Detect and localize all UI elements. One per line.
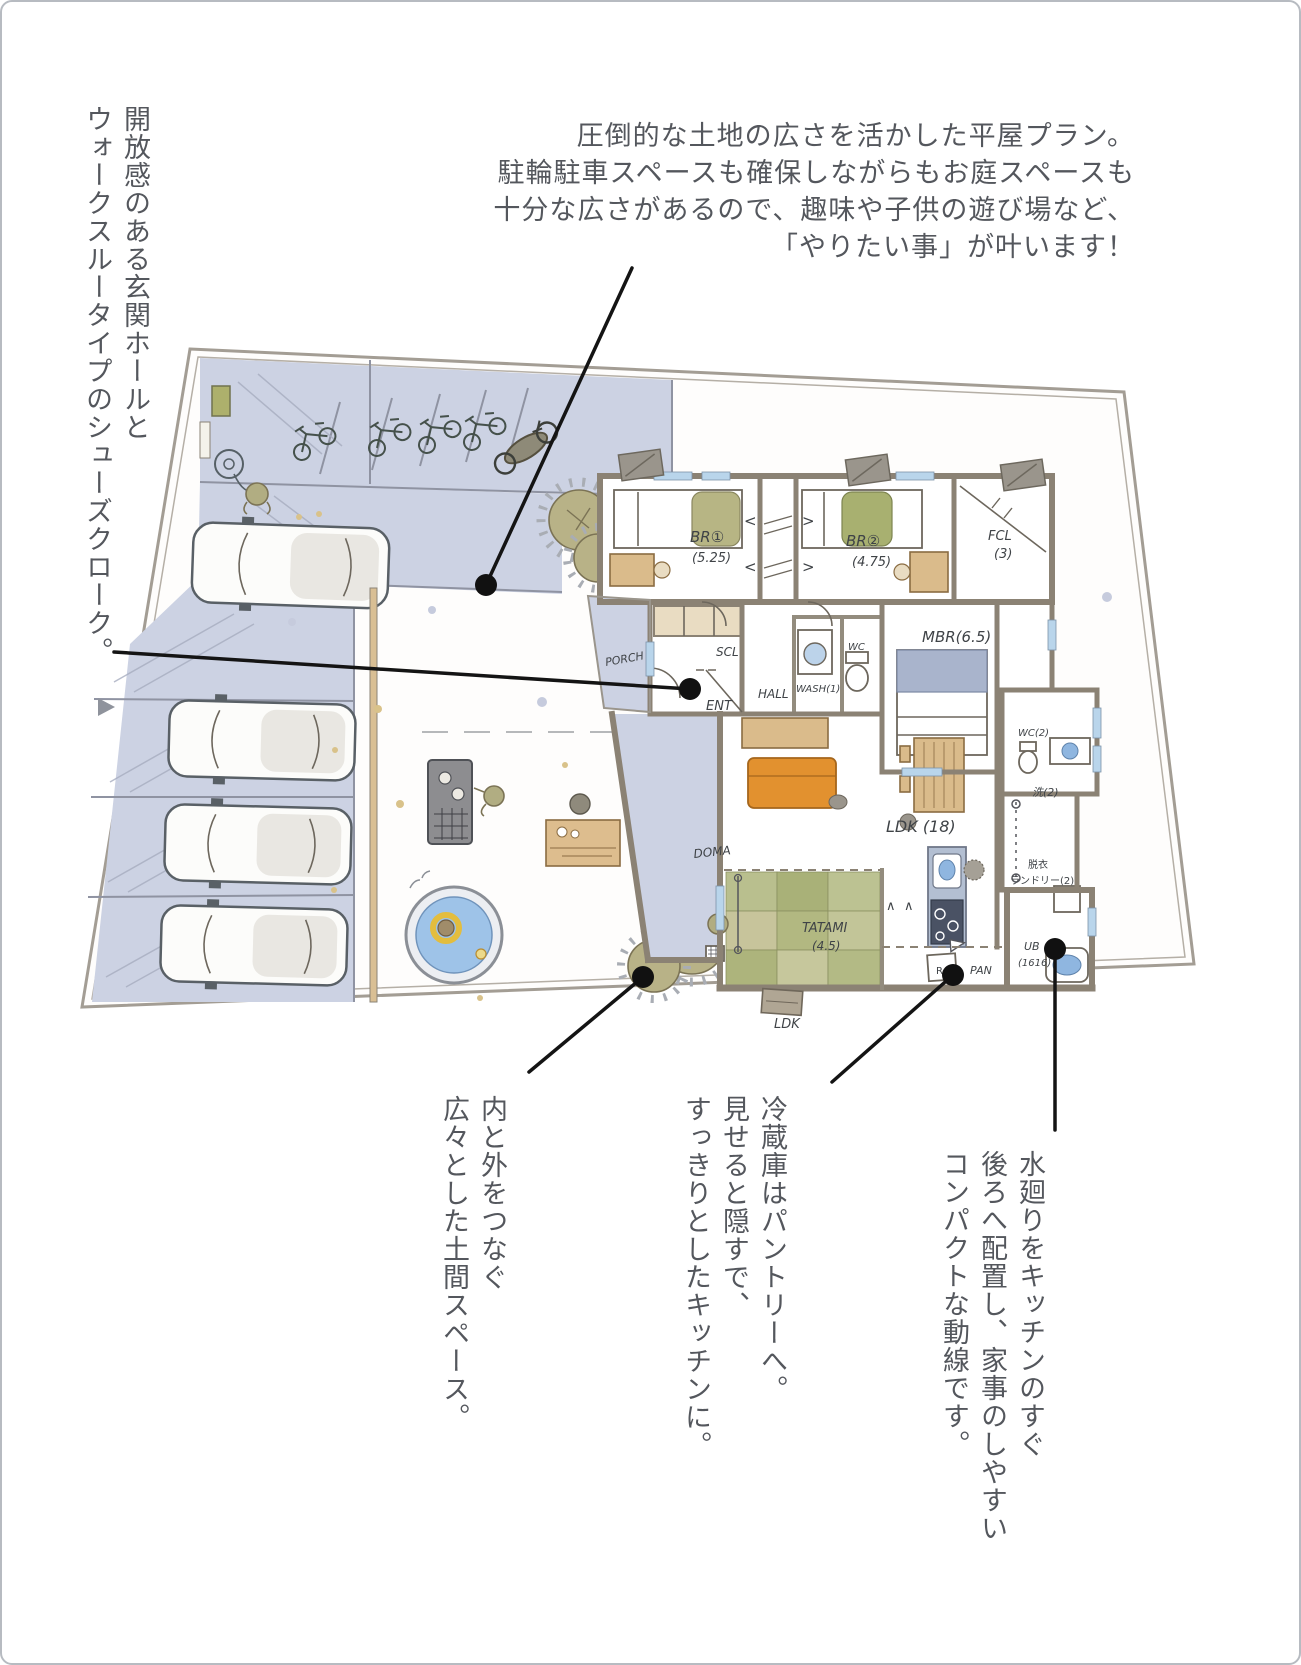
child-head [484, 786, 504, 806]
annotation-line: 広々とした土間スペース。 [440, 1095, 467, 1495]
room-label-scl: SCL [716, 645, 739, 659]
car-icon [164, 797, 352, 892]
car-icon [168, 693, 356, 788]
room-label-ub: UB [1024, 940, 1040, 953]
dog [964, 860, 984, 880]
duck-toy [476, 949, 486, 959]
cat [829, 795, 847, 809]
room-label-br2: BR② [846, 532, 880, 550]
step-mark-icon: ∧ [886, 899, 896, 914]
annotation-line: 後ろへ配置し、家事のしやすい [978, 1150, 1005, 1590]
room-label-hall: HALL [758, 687, 789, 701]
annotation-line: 開放感のある玄関ホールと [121, 105, 148, 685]
annotation-left-entrance: 開放感のある玄関ホールと ウォークスルータイプのシューズクローク。 [62, 105, 148, 685]
garden-fence [370, 588, 377, 1002]
room-label-sen2: 洗(2) [1032, 786, 1059, 799]
room-label-laundry: ランドリー(2) [1010, 875, 1074, 887]
room-label-wc2: WC(2) [1018, 728, 1049, 739]
room-label-br2-size: (4.75) [852, 555, 891, 570]
callout-dot-bathroom [1044, 938, 1066, 960]
annotation-line: 駐輪駐車スペースも確保しながらもお庭スペースも [493, 155, 1135, 192]
annotation-line: 内と外をつなぐ [478, 1095, 505, 1495]
car-icon [160, 898, 348, 993]
room-label-fridge: R [936, 966, 943, 977]
utility-box [212, 386, 230, 416]
room-label-wash: WASH(1) [796, 684, 840, 695]
annotation-line: ウォークスルータイプのシューズクローク。 [83, 105, 110, 685]
room-label-fcl-size: (3) [994, 547, 1012, 562]
stone-slab [200, 422, 210, 458]
step-mark-icon: ∧ [904, 899, 914, 914]
annotation-top-right: 圧倒的な土地の広さを活かした平屋プラン。 駐輪駐車スペースも確保しながらもお庭ス… [493, 118, 1135, 266]
room-label-br1: BR① [690, 528, 724, 546]
room-label-ent: ENT [706, 699, 733, 714]
annotation-bottom-pantry: 冷蔵庫はパントリーへ。 見せると隠すで、 すっきりとしたキッチンに。 [665, 1095, 785, 1515]
annotation-line: コンパクトな動線です。 [940, 1150, 967, 1590]
deck-label-ldk: LDK [774, 1017, 801, 1032]
room-label-fcl: FCL [988, 529, 1012, 544]
scanned-floor-plan-page: BR① (5.25) BR② (4.75) FCL (3) MBR(6.5) S… [0, 0, 1301, 1665]
annotation-line: 圧倒的な土地の広さを活かした平屋プラン。 [493, 118, 1135, 155]
child-in-float [438, 920, 454, 936]
callout-dot-parking [475, 574, 497, 596]
room-label-ldk: LDK (18) [886, 817, 956, 836]
annotation-line: すっきりとしたキッチンに。 [682, 1095, 709, 1515]
room-label-tatami-size: (4.5) [812, 939, 840, 953]
callout-dot-doma [632, 966, 654, 988]
car-icon [191, 515, 390, 616]
door-chevron-icon: < [744, 558, 757, 576]
callout-dot-entrance [679, 678, 701, 700]
room-label-mbr: MBR(6.5) [922, 628, 991, 646]
entrance-marker [98, 698, 115, 716]
annotation-bottom-doma: 内と外をつなぐ 広々とした土間スペース。 [425, 1095, 505, 1495]
annotation-line: 水廻りをキッチンのすぐ [1016, 1150, 1043, 1590]
room-label-pantry: PAN [970, 964, 992, 977]
room-label-wc: WC [848, 642, 865, 653]
door-chevron-icon: < [744, 512, 757, 530]
room-label-datsui: 脱衣 [1028, 858, 1048, 871]
room-label-ub-size: (1616) [1018, 958, 1051, 969]
door-chevron-icon: > [802, 512, 815, 530]
sofa [748, 758, 836, 808]
annotation-line: 十分な広さがあるので、趣味や子供の遊び場など、 [493, 192, 1135, 229]
door-chevron-icon: > [802, 558, 815, 576]
annotation-line: 「やりたい事」が叶います！ [493, 229, 1135, 266]
house: BR① (5.25) BR② (4.75) FCL (3) MBR(6.5) S… [588, 449, 1101, 1032]
annotation-line: 冷蔵庫はパントリーへ。 [758, 1095, 785, 1515]
callout-dot-pantry [942, 964, 964, 986]
annotation-line: 見せると隠すで、 [720, 1095, 747, 1515]
deck-bench [761, 989, 803, 1016]
room-label-br1-size: (5.25) [692, 551, 731, 566]
room-label-tatami: TATAMI [802, 921, 848, 936]
annotation-bottom-water: 水廻りをキッチンのすぐ 後ろへ配置し、家事のしやすい コンパクトな動線です。 [923, 1150, 1043, 1590]
